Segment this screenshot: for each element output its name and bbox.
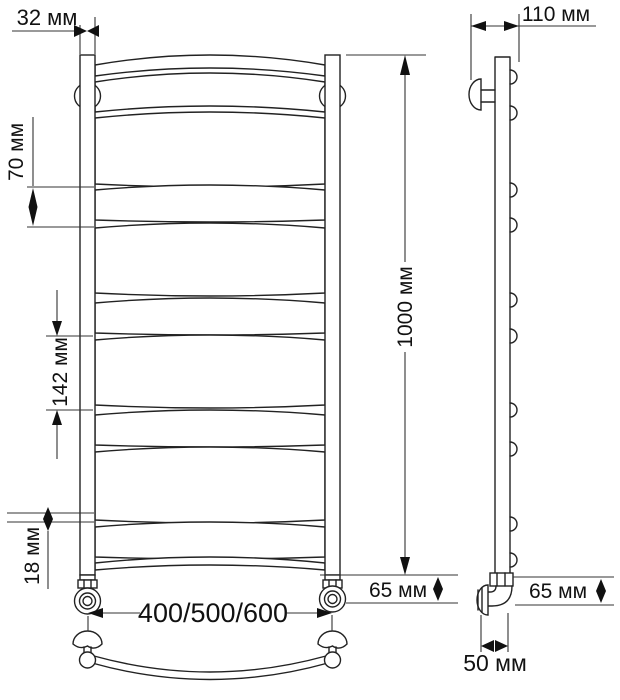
dim-depth: 110 мм	[471, 3, 596, 80]
shell-bracket-right	[318, 631, 347, 668]
rail	[95, 112, 325, 187]
side-view	[469, 57, 517, 615]
bottom-fitting-right	[320, 575, 346, 612]
dim-label-tube: 18 мм	[21, 527, 44, 585]
dim-label-bottom-offset-front: 65 мм	[369, 579, 427, 602]
left-post	[80, 55, 95, 575]
side-rail-ends	[510, 70, 517, 567]
drawing-canvas: 32 мм 70 мм 142 мм 18 мм 1000 мм	[0, 0, 620, 700]
dim-label-widths: 400/500/600	[138, 598, 288, 628]
rail	[95, 522, 325, 559]
dim-bottom-offset-side: 65 мм	[513, 577, 614, 605]
towel-rail-drawing: 32 мм 70 мм 142 мм 18 мм 1000 мм	[0, 0, 620, 700]
dim-label-height: 1000 мм	[394, 266, 417, 347]
side-wall-bracket-top	[469, 79, 495, 110]
dim-wall-clearance: 50 мм	[463, 613, 527, 676]
rail	[95, 223, 325, 296]
rail	[95, 73, 325, 112]
rail	[95, 557, 325, 570]
right-post	[325, 55, 340, 575]
rail	[95, 298, 325, 335]
lower-towel-bar	[73, 631, 347, 680]
side-bottom-connection	[477, 573, 513, 615]
side-post	[495, 57, 510, 573]
rail	[95, 447, 325, 523]
dim-label-pitch-large: 142 мм	[49, 337, 72, 407]
dim-label-pitch-small: 70 мм	[5, 123, 28, 181]
dim-label-post-width: 32 мм	[17, 5, 78, 30]
dim-height: 1000 мм	[346, 55, 426, 575]
rail	[95, 335, 325, 408]
front-view	[73, 55, 347, 680]
front-rails	[95, 55, 325, 570]
dim-label-wall-clearance: 50 мм	[463, 650, 527, 676]
rail	[95, 185, 325, 222]
shell-bracket-left	[73, 631, 102, 668]
rail	[95, 410, 325, 447]
dim-label-bottom-offset-side: 65 мм	[529, 580, 587, 603]
dim-label-depth: 110 мм	[522, 3, 590, 26]
dim-post-width: 32 мм	[12, 5, 99, 54]
dim-widths: 400/500/600	[88, 598, 332, 631]
bottom-fitting-left	[75, 575, 101, 614]
